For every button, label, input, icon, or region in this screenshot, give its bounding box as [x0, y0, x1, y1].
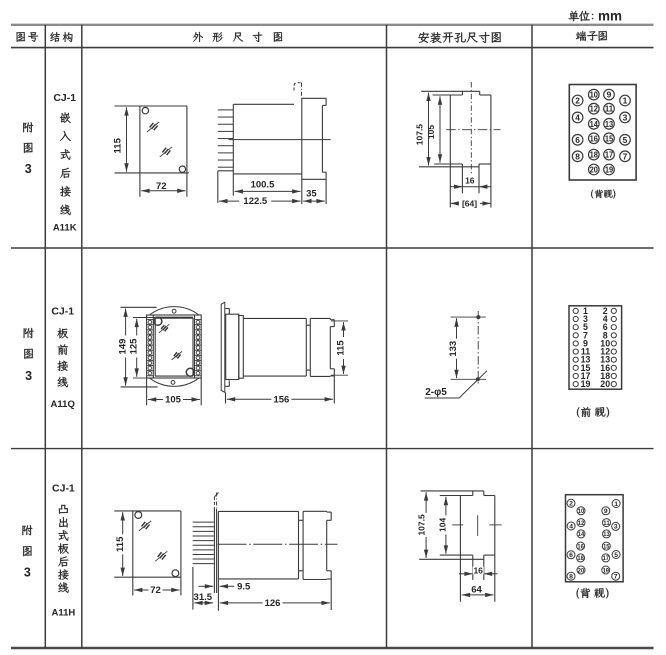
- svg-text:CJ-1: CJ-1: [52, 482, 75, 494]
- svg-text:4: 4: [575, 112, 580, 122]
- svg-text:12: 12: [578, 520, 585, 527]
- svg-text:64: 64: [471, 585, 482, 596]
- svg-text:104: 104: [438, 518, 448, 532]
- svg-text:A11H: A11H: [52, 608, 76, 619]
- svg-text:156: 156: [273, 394, 289, 405]
- svg-text:100.5: 100.5: [251, 180, 275, 191]
- svg-text:16: 16: [465, 176, 475, 186]
- svg-text:19: 19: [581, 379, 591, 389]
- svg-text:14: 14: [578, 531, 585, 538]
- svg-text:5: 5: [623, 135, 628, 145]
- svg-text:133: 133: [448, 341, 459, 357]
- svg-text:20: 20: [578, 567, 585, 574]
- svg-text:115: 115: [336, 340, 347, 356]
- svg-text:A11Q: A11Q: [51, 399, 75, 410]
- svg-text:CJ-1: CJ-1: [51, 305, 74, 317]
- svg-text:31.5: 31.5: [194, 592, 213, 603]
- svg-text:3: 3: [24, 565, 31, 579]
- svg-text:13: 13: [603, 531, 610, 538]
- svg-text:9: 9: [607, 90, 612, 100]
- svg-text:11: 11: [605, 104, 614, 114]
- svg-text:CJ-1: CJ-1: [53, 92, 76, 104]
- svg-text:122.5: 122.5: [243, 196, 267, 207]
- svg-text:6: 6: [569, 552, 573, 559]
- svg-text:105: 105: [426, 125, 436, 139]
- svg-text:16: 16: [590, 133, 599, 143]
- svg-text:5: 5: [614, 552, 618, 559]
- svg-text:14: 14: [590, 119, 599, 129]
- svg-text:72: 72: [156, 181, 167, 192]
- svg-text:16: 16: [473, 565, 483, 575]
- svg-text:105: 105: [165, 395, 182, 406]
- svg-text:10: 10: [590, 90, 599, 100]
- svg-text:[64]: [64]: [462, 199, 477, 209]
- svg-text:8: 8: [575, 151, 580, 161]
- svg-text:11: 11: [603, 520, 610, 527]
- svg-text:16: 16: [577, 543, 584, 550]
- svg-text:10: 10: [578, 508, 585, 515]
- svg-text:17: 17: [603, 555, 610, 562]
- svg-text:126: 126: [265, 598, 281, 609]
- svg-text:20: 20: [590, 165, 599, 175]
- svg-text:mm: mm: [598, 9, 622, 24]
- svg-text:9: 9: [604, 508, 608, 515]
- svg-text:3: 3: [614, 524, 618, 531]
- svg-text:18: 18: [577, 555, 584, 562]
- svg-text:9.5: 9.5: [237, 582, 251, 593]
- svg-text:A11K: A11K: [53, 222, 77, 233]
- svg-text:6: 6: [575, 135, 580, 145]
- svg-text:35: 35: [306, 189, 317, 200]
- svg-text:20: 20: [600, 379, 610, 389]
- svg-text:7: 7: [614, 574, 618, 581]
- svg-text:12: 12: [590, 104, 599, 114]
- svg-text:19: 19: [605, 165, 614, 175]
- svg-text:1: 1: [614, 501, 618, 508]
- svg-text:3: 3: [623, 112, 628, 122]
- svg-text:8: 8: [569, 574, 573, 581]
- svg-text:107.5: 107.5: [414, 124, 424, 146]
- svg-text:72: 72: [150, 585, 161, 596]
- svg-text:2: 2: [575, 96, 580, 106]
- svg-text:2-φ5: 2-φ5: [425, 387, 447, 398]
- svg-text:115: 115: [113, 137, 124, 153]
- svg-text:107.5: 107.5: [417, 514, 427, 536]
- svg-text:19: 19: [603, 567, 610, 574]
- svg-text:3: 3: [25, 369, 32, 383]
- svg-text:115: 115: [115, 536, 126, 552]
- svg-text:149: 149: [118, 339, 129, 355]
- svg-text:17: 17: [605, 150, 614, 160]
- svg-text:125: 125: [129, 338, 140, 355]
- svg-text:13: 13: [605, 119, 614, 129]
- svg-text:15: 15: [605, 133, 614, 143]
- svg-text:1: 1: [623, 96, 628, 106]
- svg-text:4: 4: [569, 523, 573, 530]
- svg-text:7: 7: [623, 151, 628, 161]
- svg-text:15: 15: [603, 543, 610, 550]
- svg-text:3: 3: [25, 162, 32, 176]
- svg-text:18: 18: [590, 150, 599, 160]
- svg-text:2: 2: [569, 501, 573, 508]
